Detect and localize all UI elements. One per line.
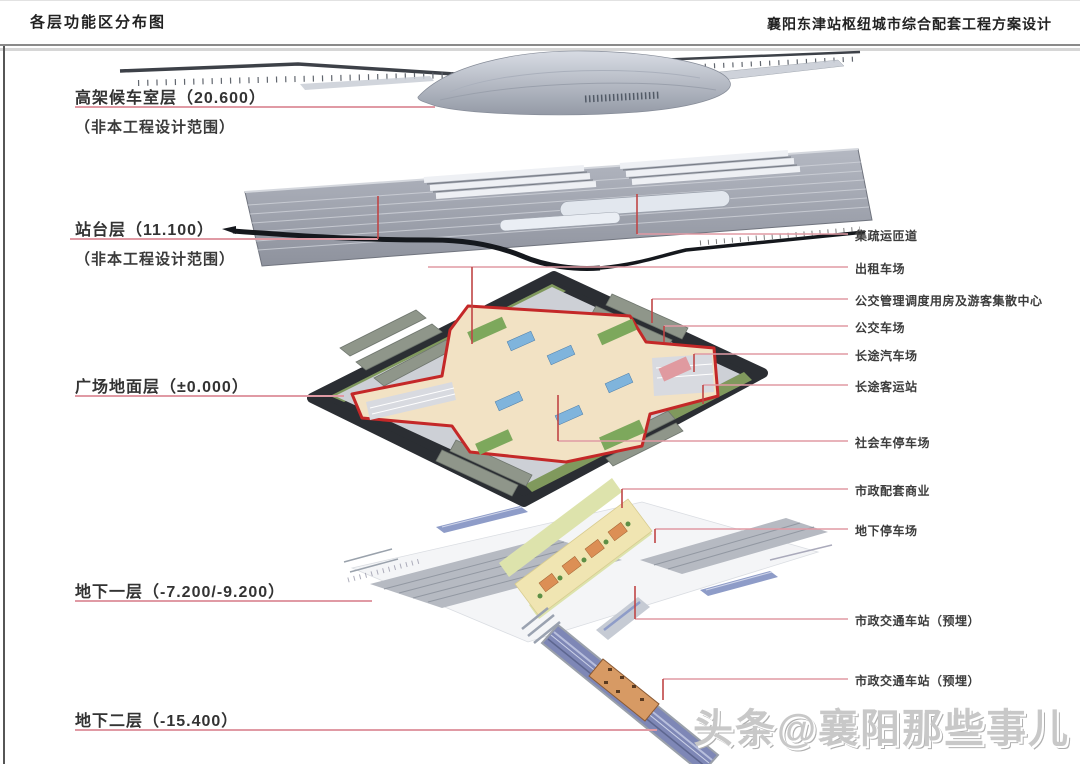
callout-underground-parking: 地下停车场 [855,522,918,539]
layer-label-basement-1: 地下一层（-7.200/-9.200） [75,578,285,602]
layer-label-elevated-waiting-hall: 高架候车室层（20.600） [75,84,266,108]
watermark: 头条@襄阳那些事儿 [693,696,1070,754]
callout-ramp: 集疏运匝道 [855,227,918,244]
callout-bus-mgmt-center: 公交管理调度用房及游客集散中心 [855,292,1043,309]
layer-label-plaza-ground: 广场地面层（±0.000） [75,373,249,397]
layer-label-basement-2: 地下二层（-15.400） [75,707,238,731]
layer-basement2-graphic [522,608,718,764]
callout-municipal-retail: 市政配套商业 [855,482,930,499]
callout-taxi-lot: 出租车场 [855,260,905,277]
layer-note-elevated-waiting-hall: （非本工程设计范围） [75,116,235,137]
callout-bus-yard: 公交车场 [855,319,905,336]
layer-note-platform: （非本工程设计范围） [75,248,235,269]
callout-coach-station: 长途客运站 [855,378,918,395]
layer-basement1-graphic [344,478,832,642]
callout-municipal-transit-station-1: 市政交通车站（预埋） [855,612,980,629]
callout-social-parking: 社会车停车场 [855,434,930,451]
callout-coach-yard: 长途汽车场 [855,347,918,364]
callout-municipal-transit-station-2: 市政交通车站（预埋） [855,672,980,689]
layer-label-platform: 站台层（11.100） [75,216,214,240]
layer-platform-graphic [222,149,872,269]
layer-plaza-graphic [312,276,763,502]
